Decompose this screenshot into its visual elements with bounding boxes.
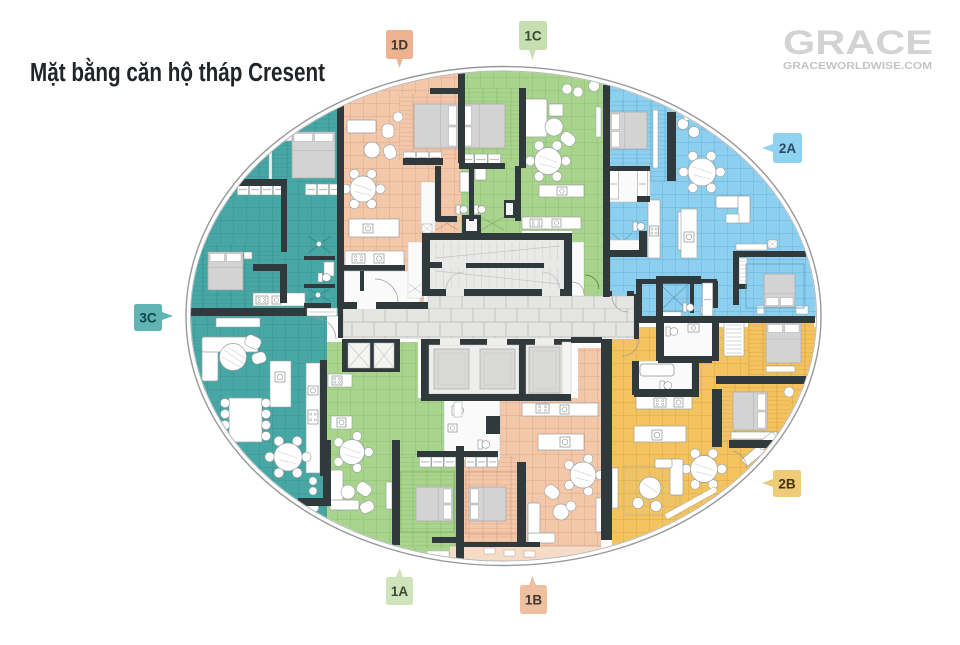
svg-text:1D: 1D <box>391 37 409 52</box>
svg-text:2A: 2A <box>779 141 797 156</box>
svg-text:1B: 1B <box>525 592 543 607</box>
svg-text:3C: 3C <box>139 310 157 325</box>
svg-text:1A: 1A <box>391 584 409 599</box>
svg-text:GRACEWORLDWISE.COM: GRACEWORLDWISE.COM <box>783 61 932 72</box>
svg-text:1C: 1C <box>524 28 542 43</box>
svg-text:2B: 2B <box>778 476 796 491</box>
svg-text:Mặt bằng căn hộ tháp Cresent: Mặt bằng căn hộ tháp Cresent <box>30 57 325 87</box>
svg-text:GRACE: GRACE <box>783 24 933 62</box>
